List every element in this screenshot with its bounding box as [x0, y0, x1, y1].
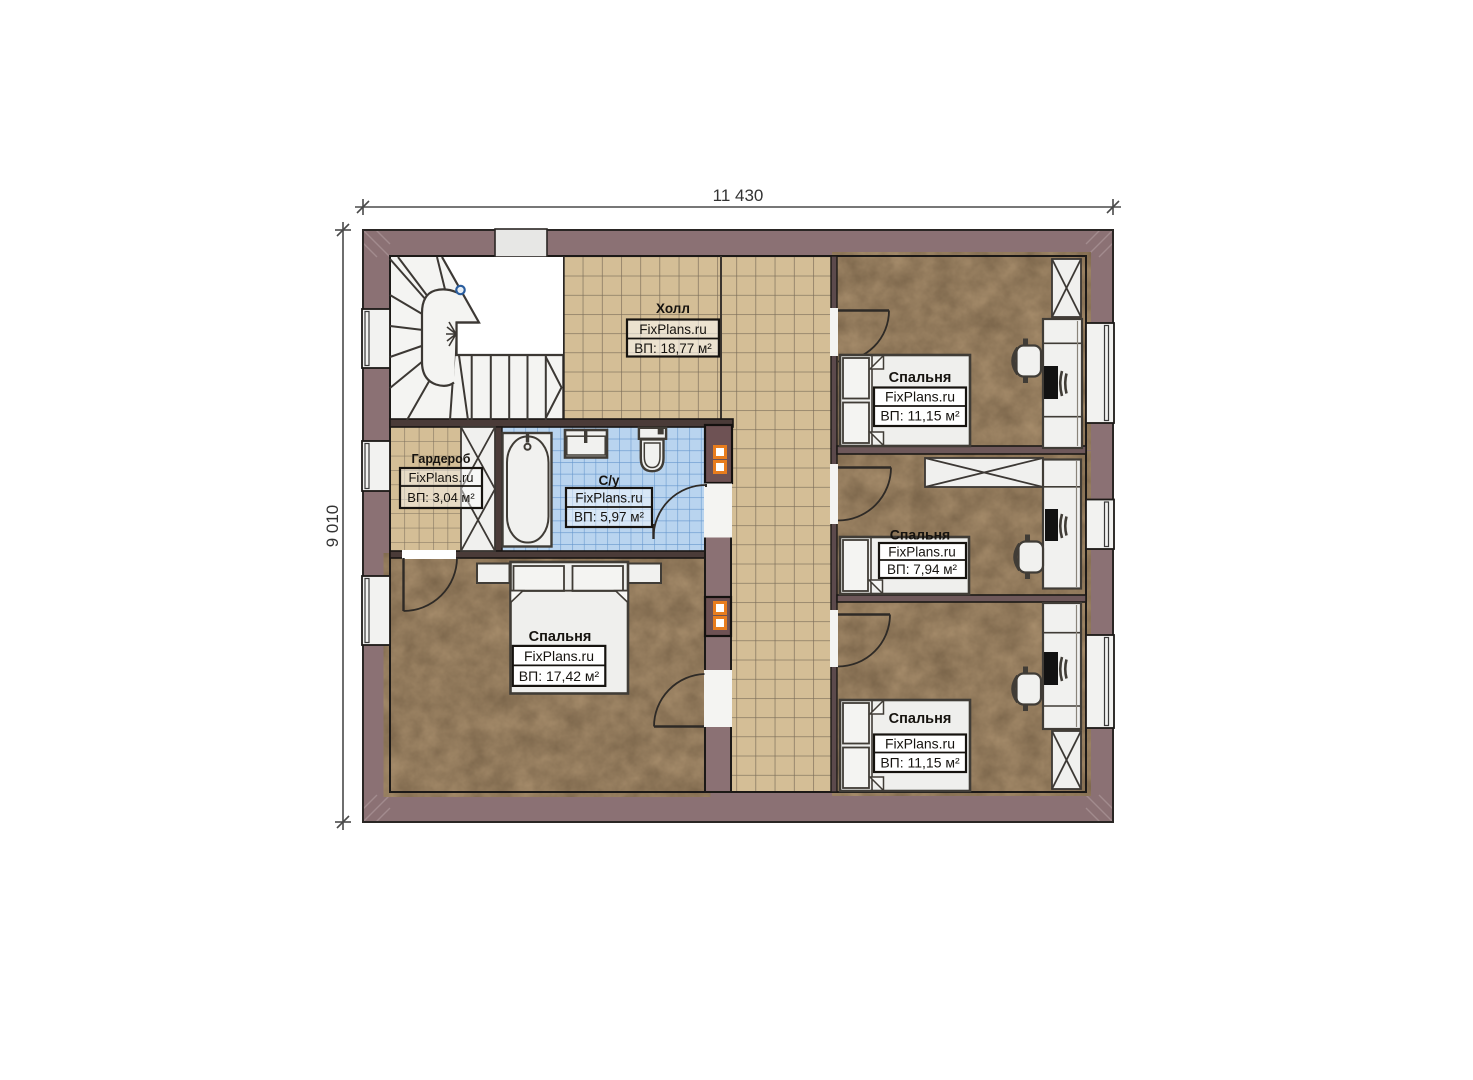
svg-text:ВП: 5,97 м²: ВП: 5,97 м² [574, 510, 645, 525]
svg-text:ВП: 11,15 м²: ВП: 11,15 м² [880, 755, 960, 771]
svg-text:Спальня: Спальня [889, 711, 952, 727]
svg-text:Гардероб: Гардероб [411, 452, 470, 466]
svg-text:Спальня: Спальня [889, 370, 952, 386]
svg-text:ВП: 7,94 м²: ВП: 7,94 м² [887, 562, 958, 577]
svg-text:FixPlans.ru: FixPlans.ru [885, 389, 955, 405]
svg-text:ВП: 18,77 м²: ВП: 18,77 м² [634, 341, 712, 356]
svg-text:FixPlans.ru: FixPlans.ru [888, 545, 956, 560]
svg-text:FixPlans.ru: FixPlans.ru [639, 322, 707, 337]
svg-text:ВП: 3,04 м²: ВП: 3,04 м² [407, 490, 475, 505]
svg-text:FixPlans.ru: FixPlans.ru [575, 491, 643, 506]
svg-text:FixPlans.ru: FixPlans.ru [885, 736, 955, 752]
svg-text:9 010: 9 010 [323, 505, 342, 548]
svg-text:11 430: 11 430 [713, 186, 764, 205]
svg-text:ВП: 11,15 м²: ВП: 11,15 м² [880, 408, 960, 424]
svg-text:Спальня: Спальня [529, 629, 592, 645]
svg-text:ВП: 17,42 м²: ВП: 17,42 м² [519, 668, 600, 684]
svg-text:FixPlans.ru: FixPlans.ru [408, 470, 473, 485]
svg-text:Холл: Холл [656, 301, 690, 316]
svg-text:С/у: С/у [598, 473, 620, 488]
svg-text:FixPlans.ru: FixPlans.ru [524, 648, 594, 664]
svg-text:Спальня: Спальня [890, 527, 950, 543]
